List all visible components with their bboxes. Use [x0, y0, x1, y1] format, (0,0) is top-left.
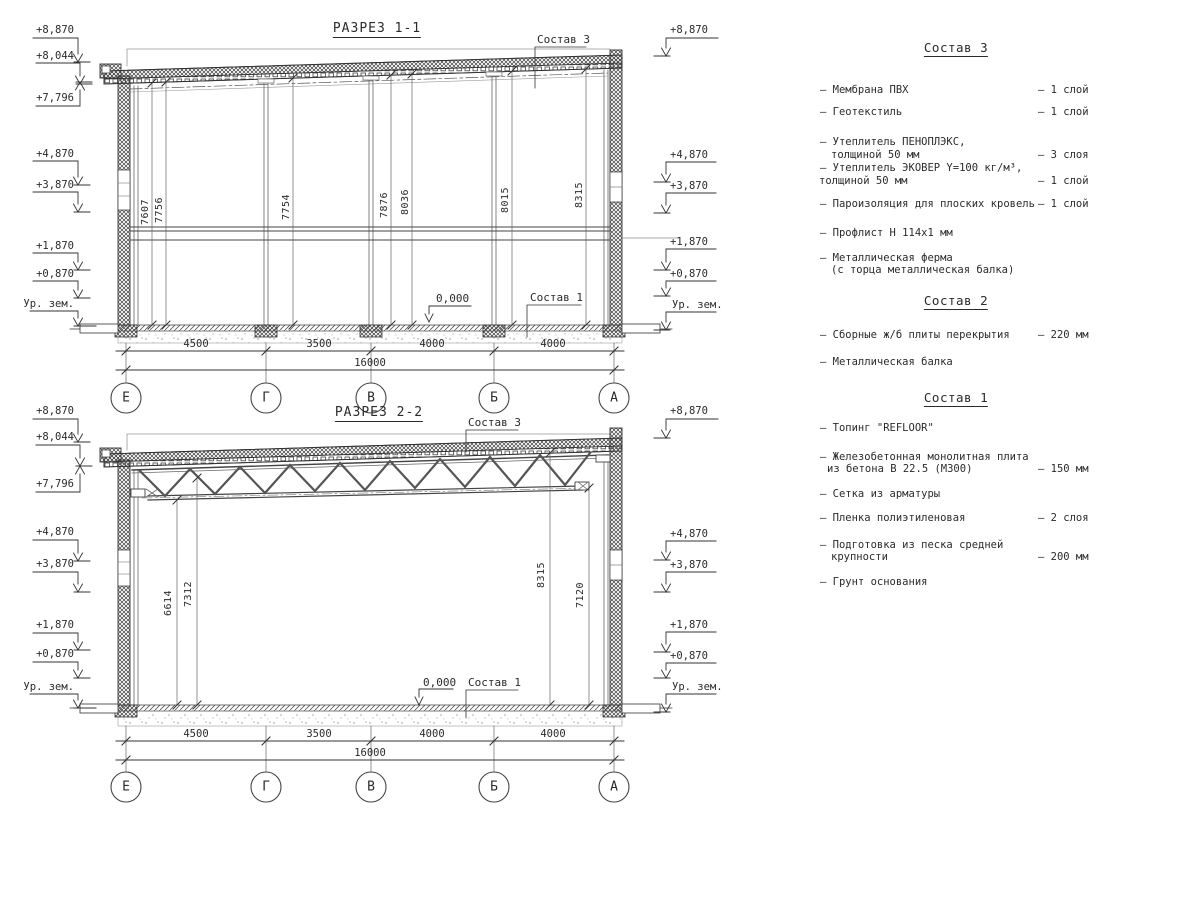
legend-value: – 150 мм: [1038, 464, 1089, 475]
elevation-label: +0,870: [28, 649, 74, 660]
elevation-label: +4,870: [670, 150, 708, 161]
elevation-label: +0,870: [670, 651, 708, 662]
dimension-label: 7120: [576, 582, 586, 608]
elevation-label: +3,870: [670, 181, 708, 192]
dimension-label: 4000: [419, 339, 444, 350]
dimension-label: 7607: [141, 199, 151, 225]
elevation-label: Ур. зем.: [20, 299, 74, 310]
dimension-label: 8015: [501, 187, 511, 213]
elevation-value: +1,870: [28, 620, 74, 631]
elevation-value: +8,044: [28, 51, 74, 62]
dimension-label: 8315: [537, 562, 547, 588]
legend-value: – 1 слой: [1038, 85, 1089, 96]
legend-item: (с торца металлическая балка): [831, 265, 1014, 276]
legend-item: толщиной 50 мм: [819, 176, 908, 187]
legend-value: – 2 слоя: [1038, 513, 1089, 524]
elevation-value: +0,870: [28, 649, 74, 660]
axis-bubble-label: Б: [490, 781, 498, 794]
elevation-label: +8,044: [28, 51, 74, 62]
dimension-label: 4500: [183, 729, 208, 740]
legend-value: – 1 слой: [1038, 176, 1089, 187]
legend-item: – Топинг "REFLOOR": [820, 423, 934, 434]
elevation-label: +0,870: [28, 269, 74, 280]
legend-value: – 200 мм: [1038, 552, 1089, 563]
axis-bubble-label: Б: [490, 392, 498, 405]
elevation-label: +3,870: [28, 559, 74, 570]
dimension-label: 6614: [164, 590, 174, 616]
elevation-label: +3,870: [28, 180, 74, 191]
axis-bubble-label: Е: [122, 781, 130, 794]
legend-item: – Пленка полиэтиленовая: [820, 513, 965, 524]
legend-item: – Геотекстиль: [820, 107, 902, 118]
legend-item: – Железобетонная монолитная плита: [820, 452, 1029, 463]
legend-value: – 3 слоя: [1038, 150, 1089, 161]
dimension-label: 4000: [419, 729, 444, 740]
section-title: РАЗРЕЗ 2-2: [335, 406, 423, 422]
legend-value: – 1 слой: [1038, 199, 1089, 210]
callout-label: Состав 3: [537, 34, 590, 45]
axis-bubble-label: А: [610, 781, 618, 794]
legend-item: – Мембрана ПВХ: [820, 85, 909, 96]
legend-heading: Состав 3: [924, 42, 988, 57]
elevation-value: Ур. зем.: [20, 682, 74, 693]
legend-item: – Подготовка из песка средней: [820, 540, 1003, 551]
elevation-label: +0,870: [670, 269, 708, 280]
legend-item: – Металлическая балка: [820, 357, 953, 368]
elevation-value: +8,870: [28, 406, 74, 417]
legend-item: – Профлист Н 114х1 мм: [820, 228, 953, 239]
elevation-value: +3,870: [28, 180, 74, 191]
axis-bubble-label: Г: [262, 781, 270, 794]
axis-bubble-label: В: [367, 392, 375, 405]
dimension-label: 8315: [575, 182, 585, 208]
elevation-label: +4,870: [28, 149, 74, 160]
elevation-value: +7,796: [28, 479, 74, 490]
elevation-label: +8,044: [28, 432, 74, 443]
elevation-label: +8,870: [28, 25, 74, 36]
elevation-value: +8,044: [28, 432, 74, 443]
elevation-label: +1,870: [670, 237, 708, 248]
elevation-value: +8,870: [28, 25, 74, 36]
legend-item: – Утеплитель ПЕНОПЛЭКС,: [820, 137, 965, 148]
section-2-2-drawing: [30, 419, 718, 802]
elevation-label: +4,870: [28, 527, 74, 538]
elevation-label: Ур. зем.: [20, 682, 74, 693]
dimension-label: 7312: [184, 581, 194, 607]
dimension-label: 3500: [306, 339, 331, 350]
dimension-label: 8036: [401, 189, 411, 215]
elevation-label: +8,870: [28, 406, 74, 417]
dimension-label: 7876: [380, 192, 390, 218]
legend-value: – 220 мм: [1038, 330, 1089, 341]
elevation-label: +1,870: [28, 620, 74, 631]
elevation-value: +3,870: [28, 559, 74, 570]
elevation-label: +8,870: [670, 406, 708, 417]
axis-bubble-label: Е: [122, 392, 130, 405]
dimension-label: 4000: [540, 729, 565, 740]
drawing-sheet: { "sections": [ { "title": "РАЗРЕЗ 1-1",…: [0, 0, 1200, 900]
dimension-label: 4000: [540, 339, 565, 350]
elevation-label: +1,870: [28, 241, 74, 252]
dimension-total-label: 16000: [354, 748, 386, 759]
dimension-label: 7756: [155, 197, 165, 223]
axis-bubble-label: А: [610, 392, 618, 405]
elevation-label: Ур. зем.: [672, 300, 723, 311]
elevation-label: +7,796: [28, 479, 74, 490]
section-title: РАЗРЕЗ 1-1: [333, 22, 421, 38]
elevation-value: Ур. зем.: [20, 299, 74, 310]
legend-value: – 1 слой: [1038, 107, 1089, 118]
dimension-total-label: 16000: [354, 358, 386, 369]
dimension-label: 4500: [183, 339, 208, 350]
elevation-value: +4,870: [28, 527, 74, 538]
legend-item: – Утеплитель ЭКОВЕР Y=100 кг/м³,: [820, 163, 1022, 174]
zero-level-label: 0,000: [423, 677, 456, 688]
callout-label: Состав 1: [468, 677, 521, 688]
elevation-label: +4,870: [670, 529, 708, 540]
legend-item: крупности: [831, 552, 888, 563]
legend-item: – Пароизоляция для плоских кровель: [820, 199, 1035, 210]
elevation-label: +3,870: [670, 560, 708, 571]
callout-label: Состав 3: [468, 417, 521, 428]
elevation-label: +1,870: [670, 620, 708, 631]
axis-bubble-label: Г: [262, 392, 270, 405]
elevation-label: +7,796: [28, 93, 74, 104]
elevation-label: Ур. зем.: [672, 682, 723, 693]
legend-item: толщиной 50 мм: [831, 150, 920, 161]
legend-heading: Состав 2: [924, 295, 988, 310]
legend-item: – Сетка из арматуры: [820, 489, 940, 500]
dimension-label: 7754: [282, 194, 292, 220]
elevation-value: +4,870: [28, 149, 74, 160]
drawing-canvas: [0, 0, 760, 900]
zero-level-label: 0,000: [436, 293, 469, 304]
callout-label: Состав 1: [530, 292, 583, 303]
elevation-value: +7,796: [28, 93, 74, 104]
legend-heading: Состав 1: [924, 392, 988, 407]
elevation-value: +1,870: [28, 241, 74, 252]
elevation-value: +0,870: [28, 269, 74, 280]
elevation-label: +8,870: [670, 25, 708, 36]
legend-item: из бетона В 22.5 (М300): [827, 464, 972, 475]
legend-item: – Сборные ж/б плиты перекрытия: [820, 330, 1010, 341]
axis-bubble-label: В: [367, 781, 375, 794]
legend-item: – Грунт основания: [820, 577, 927, 588]
dimension-label: 3500: [306, 729, 331, 740]
legend-item: – Металлическая ферма: [820, 253, 953, 264]
